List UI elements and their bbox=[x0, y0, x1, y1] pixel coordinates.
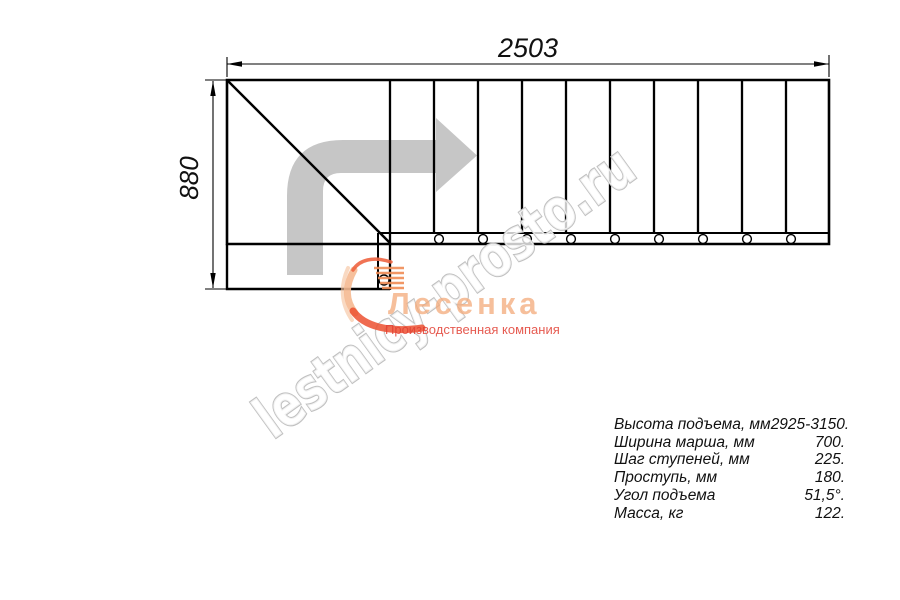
spec-value: 122. bbox=[815, 505, 845, 523]
spec-value: 2925-3150. bbox=[771, 416, 849, 434]
spec-label: Высота подъема, мм bbox=[614, 416, 771, 434]
spec-row: Высота подъема, мм 2925-3150. bbox=[614, 416, 845, 434]
spec-row: Ширина марша, мм 700. bbox=[614, 434, 845, 452]
spec-row: Проступь, мм 180. bbox=[614, 469, 845, 487]
stair-drawing-page: 2503 880 lestnicy-prosto.ru bbox=[0, 0, 900, 600]
site-watermark: lestnicy-prosto.ru bbox=[241, 132, 647, 452]
spec-table: Высота подъема, мм 2925-3150. Ширина мар… bbox=[614, 416, 845, 522]
spec-label: Шаг ступеней, мм bbox=[614, 451, 750, 469]
spec-row: Угол подъема 51,5°. bbox=[614, 487, 845, 505]
spec-value: 51,5°. bbox=[804, 487, 845, 505]
spec-label: Угол подъема bbox=[614, 487, 715, 505]
spec-label: Проступь, мм bbox=[614, 469, 717, 487]
spec-label: Ширина марша, мм bbox=[614, 434, 755, 452]
spec-label: Масса, кг bbox=[614, 505, 683, 523]
spec-value: 700. bbox=[815, 434, 845, 452]
spec-row: Масса, кг 122. bbox=[614, 505, 845, 523]
spec-value: 180. bbox=[815, 469, 845, 487]
spec-row: Шаг ступеней, мм 225. bbox=[614, 451, 845, 469]
spec-value: 225. bbox=[815, 451, 845, 469]
